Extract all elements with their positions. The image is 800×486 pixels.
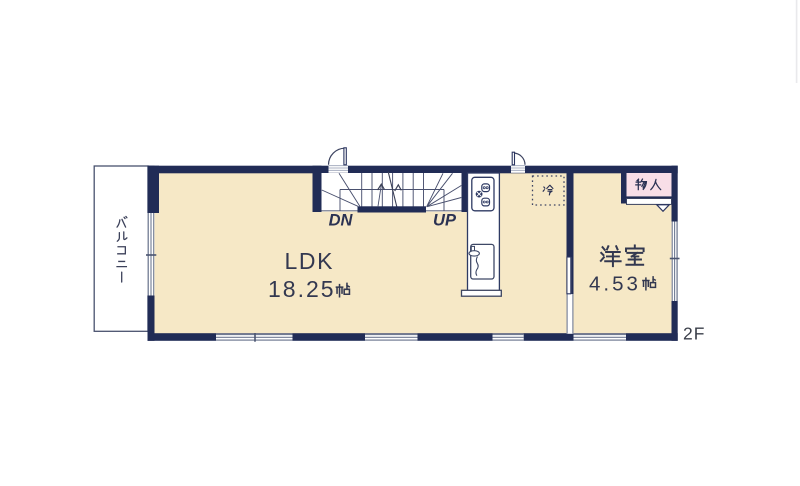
svg-text:4.53: 4.53	[589, 273, 641, 296]
svg-text:2F: 2F	[683, 324, 705, 344]
svg-text:18.25: 18.25	[268, 276, 336, 302]
svg-text:LDK: LDK	[285, 248, 335, 274]
svg-text:UP: UP	[433, 212, 457, 230]
svg-text:DN: DN	[329, 212, 354, 230]
